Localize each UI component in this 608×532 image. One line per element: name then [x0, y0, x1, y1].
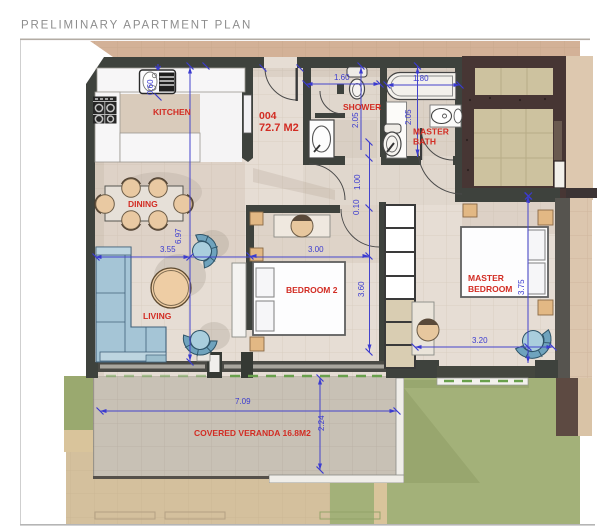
svg-text:2.24: 2.24: [317, 415, 326, 431]
svg-text:COVERED VERANDA 16.8M2: COVERED VERANDA 16.8M2: [194, 428, 311, 438]
svg-text:1.80: 1.80: [413, 74, 429, 83]
svg-text:MASTER: MASTER: [468, 273, 504, 283]
svg-text:3.55: 3.55: [160, 245, 176, 254]
svg-text:LIVING: LIVING: [143, 311, 172, 321]
svg-text:1.00: 1.00: [353, 174, 362, 190]
svg-text:3.60: 3.60: [357, 281, 366, 297]
svg-text:3.20: 3.20: [472, 336, 488, 345]
svg-text:BATH: BATH: [413, 137, 436, 147]
svg-text:BEDROOM 2: BEDROOM 2: [286, 285, 338, 295]
svg-text:2.05: 2.05: [404, 109, 413, 125]
svg-text:PRELIMINARY APARTMENT PLAN: PRELIMINARY APARTMENT PLAN: [21, 20, 252, 32]
svg-text:0.10: 0.10: [352, 199, 361, 215]
svg-text:DINING: DINING: [128, 199, 158, 209]
svg-text:7.09: 7.09: [235, 397, 251, 406]
svg-text:6.97: 6.97: [174, 228, 183, 244]
svg-text:2.05: 2.05: [351, 112, 360, 128]
svg-text:72.7 M2: 72.7 M2: [259, 122, 299, 134]
svg-text:KITCHEN: KITCHEN: [153, 107, 191, 117]
svg-text:1.60: 1.60: [334, 73, 350, 82]
svg-text:BEDROOM: BEDROOM: [468, 284, 512, 294]
svg-text:3.75: 3.75: [517, 279, 526, 295]
svg-text:MASTER: MASTER: [413, 127, 449, 137]
svg-text:3.00: 3.00: [308, 245, 324, 254]
svg-text:0.60: 0.60: [146, 79, 155, 95]
svg-text:SHOWER: SHOWER: [343, 102, 381, 112]
svg-text:004: 004: [259, 110, 277, 122]
